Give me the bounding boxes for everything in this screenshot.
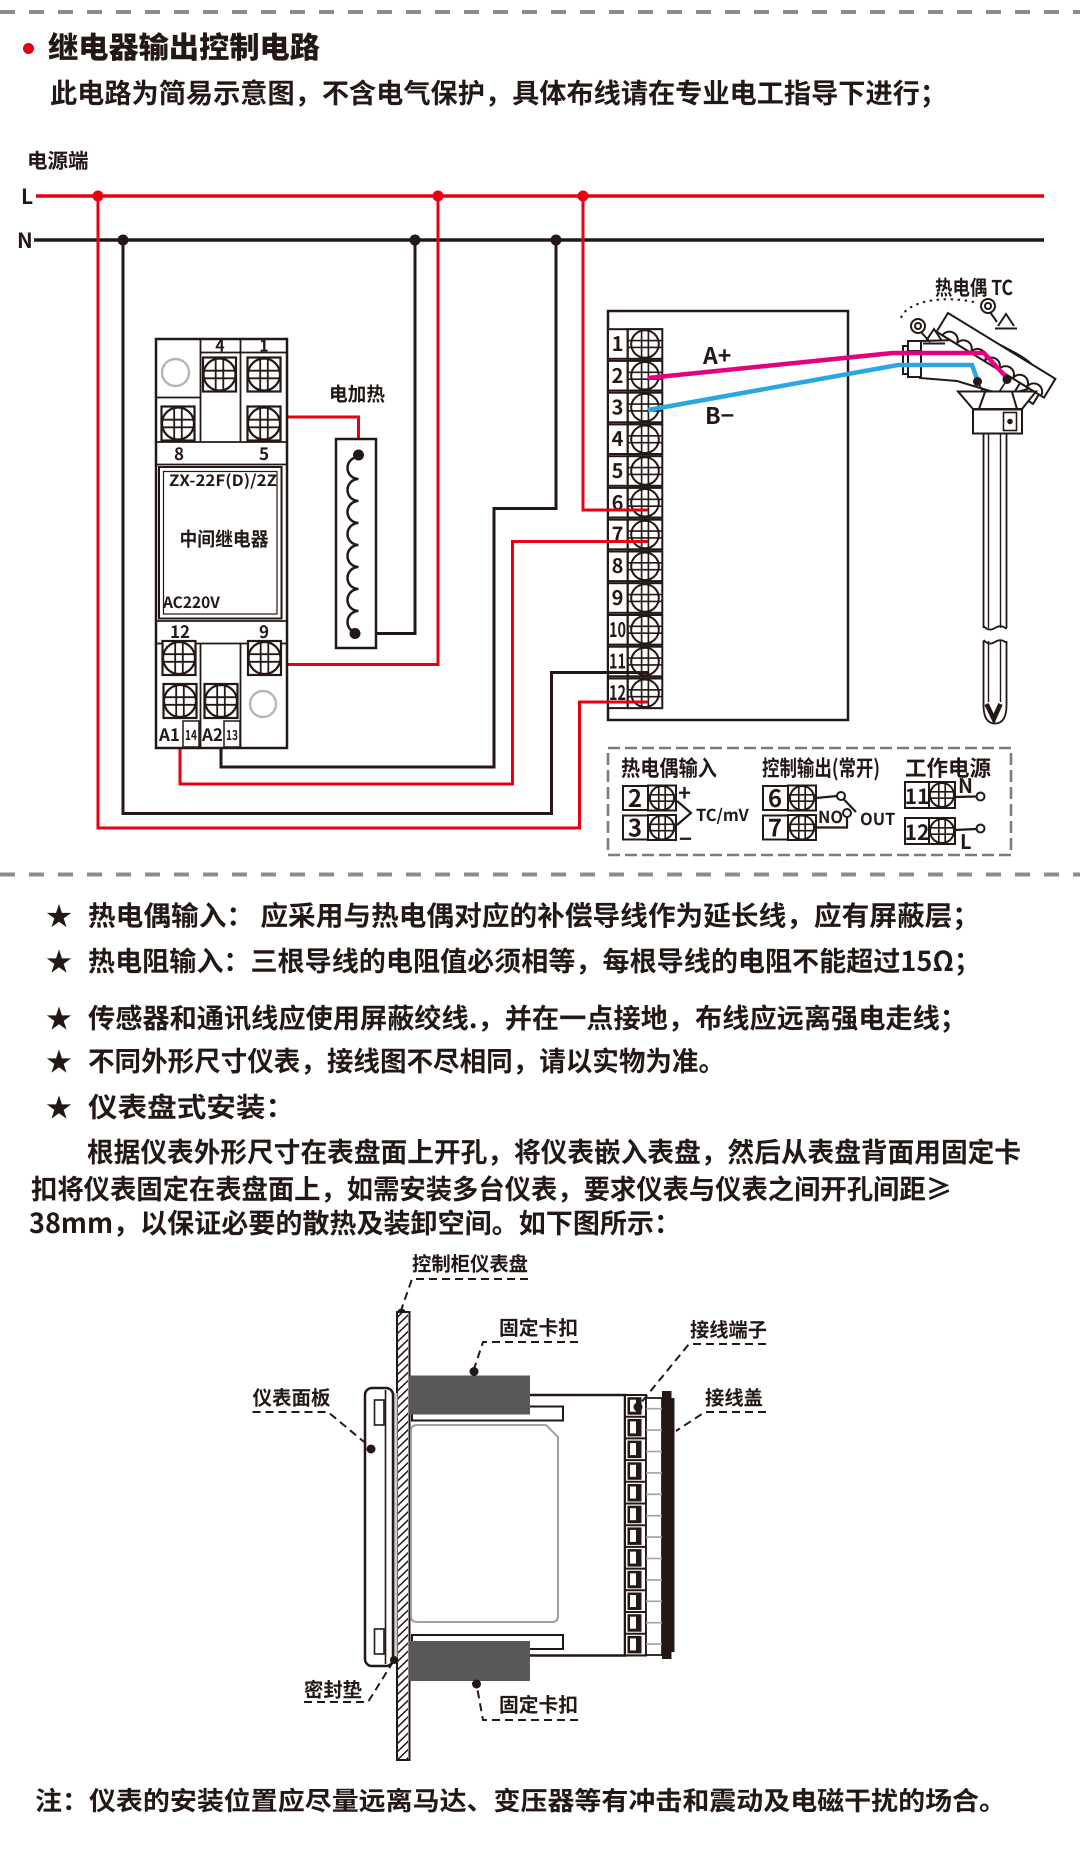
svg-text:1: 1 [259,333,268,357]
svg-text:N: N [958,770,973,799]
svg-text:A2: A2 [201,721,223,746]
svg-text:电源端: 电源端 [27,144,89,174]
svg-text:10: 10 [609,614,626,643]
svg-text:接线端子: 接线端子 [690,1314,767,1343]
svg-text:1: 1 [612,328,624,357]
svg-text:AC220V: AC220V [162,591,220,613]
svg-text:N: N [17,225,33,255]
svg-text:TC/mV: TC/mV [696,802,750,826]
svg-text:仪表面板: 仪表面板 [253,1382,331,1411]
svg-text:11: 11 [905,781,930,811]
svg-text:工作电源: 工作电源 [905,751,991,783]
svg-text:★: ★ [46,1042,72,1079]
svg-text:★: ★ [46,1088,72,1125]
svg-text:4: 4 [215,333,224,357]
svg-text:OUT: OUT [860,806,895,830]
svg-text:14: 14 [185,724,197,744]
svg-text:固定卡扣: 固定卡扣 [499,1312,578,1341]
svg-text:2: 2 [612,360,624,389]
svg-text:8: 8 [612,550,624,579]
svg-text:3: 3 [628,809,642,844]
svg-text:固定卡扣: 固定卡扣 [499,1689,578,1718]
svg-text:不同外形尺寸仪表，接线图不尽相同，请以实物为准。: 不同外形尺寸仪表，接线图不尽相同，请以实物为准。 [88,1039,725,1079]
svg-text:仪表盘式安装：: 仪表盘式安装： [88,1085,295,1125]
svg-text:5: 5 [259,440,269,465]
svg-text:★: ★ [46,942,72,979]
svg-text:B−: B− [705,397,734,431]
svg-text:7: 7 [612,519,624,548]
svg-text:接线盖: 接线盖 [705,1382,763,1411]
svg-text:38mm，以保证必要的散热及装卸空间。如下图所示：: 38mm，以保证必要的散热及装卸空间。如下图所示： [29,1201,681,1241]
svg-text:传感器和通讯线应使用屏蔽绞线.，并在一点接地，布线应远离强电: 传感器和通讯线应使用屏蔽绞线.，并在一点接地，布线应远离强电走线； [88,996,967,1036]
svg-text:热电偶输入： 应采用与热电偶对应的补偿导线作为延长线，应有屏: 热电偶输入： 应采用与热电偶对应的补偿导线作为延长线，应有屏蔽层； [88,894,980,934]
svg-text:ZX-22F(D)/2Z: ZX-22F(D)/2Z [169,469,277,491]
svg-text:密封垫: 密封垫 [304,1674,362,1703]
svg-text:热电偶 TC: 热电偶 TC [935,271,1013,301]
svg-text:中间继电器: 中间继电器 [180,523,269,552]
svg-text:11: 11 [609,646,626,675]
svg-text:13: 13 [226,724,238,744]
svg-text:★: ★ [46,897,72,934]
svg-text:控制柜仪表盘: 控制柜仪表盘 [412,1248,528,1277]
svg-text:4: 4 [612,423,624,452]
svg-text:8: 8 [174,440,184,465]
svg-text:−: − [679,822,692,854]
svg-text:A1: A1 [158,721,180,746]
svg-text:注：仪表的安装位置应尽量远离马达、变压器等有冲击和震动及电磁: 注：仪表的安装位置应尽量远离马达、变压器等有冲击和震动及电磁干扰的场合。 [35,1781,1006,1818]
svg-text:12: 12 [170,618,190,643]
svg-text:3: 3 [612,392,624,421]
svg-text:9: 9 [259,618,269,643]
svg-text:★: ★ [46,999,72,1036]
svg-text:此电路为简易示意图，不含电气保护，具体布线请在专业电工指导下: 此电路为简易示意图，不含电气保护，具体布线请在专业电工指导下进行； [50,71,947,111]
svg-text:热电阻输入：三根导线的电阻值必须相等，每根导线的电阻不能超过: 热电阻输入：三根导线的电阻值必须相等，每根导线的电阻不能超过15Ω； [88,939,981,979]
svg-text:L: L [21,181,33,211]
svg-text:5: 5 [612,455,624,484]
svg-text:9: 9 [612,582,624,611]
svg-text:7: 7 [768,809,782,844]
svg-text:电加热: 电加热 [329,378,385,407]
svg-text:12: 12 [905,817,930,847]
svg-text:NO: NO [818,804,843,828]
svg-text:A+: A+ [702,337,731,371]
svg-text:继电器输出控制电路: 继电器输出控制电路 [48,23,320,67]
svg-text:L: L [960,826,972,855]
svg-text:根据仪表外形尺寸在表盘面上开孔，将仪表嵌入表盘，然后从表盘背: 根据仪表外形尺寸在表盘面上开孔，将仪表嵌入表盘，然后从表盘背面用固定卡 [87,1130,1021,1170]
